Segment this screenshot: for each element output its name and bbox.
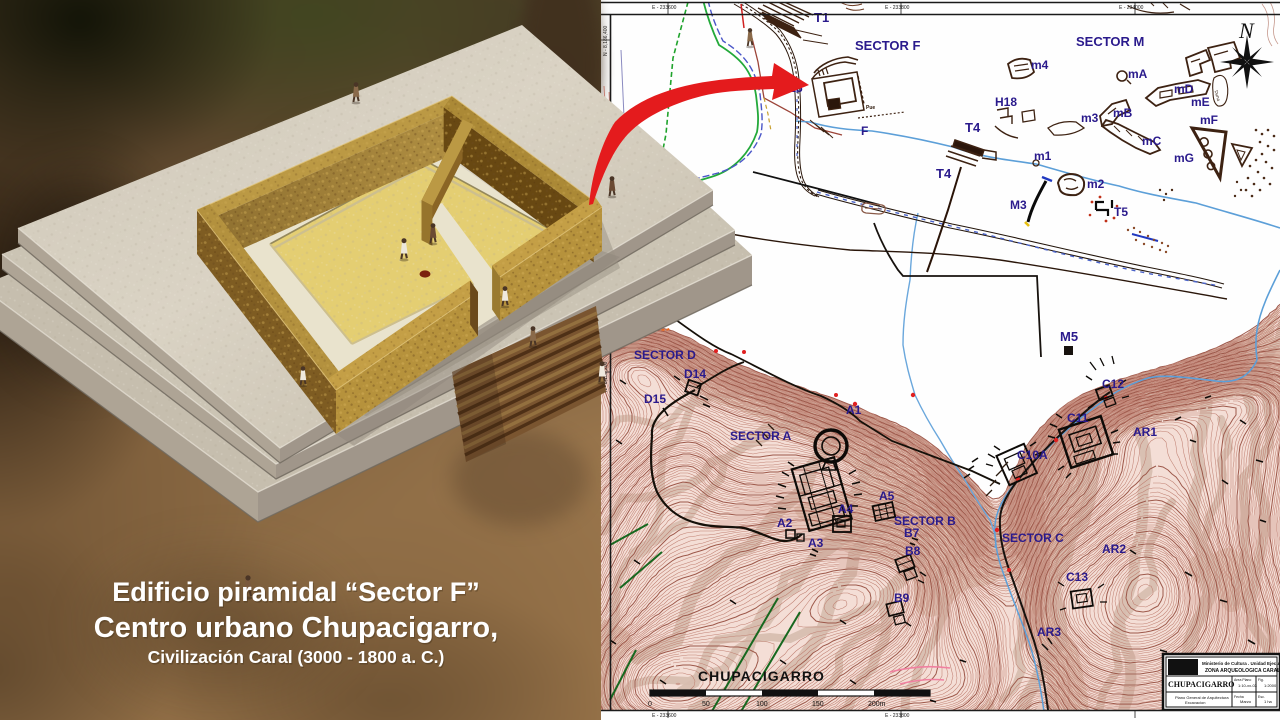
svg-text:AR3: AR3: [1037, 625, 1061, 639]
svg-text:E - 233600: E - 233600: [652, 713, 677, 719]
svg-text:Pue: Pue: [866, 105, 875, 111]
svg-text:H18: H18: [995, 95, 1017, 109]
svg-text:ZONA ARQUEOLOGICA CARAL: ZONA ARQUEOLOGICA CARAL: [1205, 668, 1280, 674]
svg-text:A4: A4: [838, 502, 854, 516]
svg-text:C10A: C10A: [1017, 448, 1048, 462]
svg-text:Ministerio de Cultura . Unidad: Ministerio de Cultura . Unidad Ejecutora…: [1202, 661, 1280, 666]
svg-text:B9: B9: [894, 591, 910, 605]
svg-text:A2: A2: [777, 516, 793, 530]
svg-text:m2: m2: [1087, 177, 1105, 191]
svg-text:Marzo: Marzo: [1240, 699, 1252, 704]
svg-text:A5: A5: [879, 489, 895, 503]
svg-text:N - 8,186,400: N - 8,186,400: [603, 25, 609, 56]
svg-text:A1: A1: [846, 403, 862, 417]
svg-text:A3: A3: [808, 536, 824, 550]
svg-text:SECTOR M: SECTOR M: [1076, 34, 1144, 49]
svg-text:mG: mG: [1174, 151, 1194, 165]
svg-text:1 ha: 1 ha: [1264, 699, 1273, 704]
svg-text:E - 233800: E - 233800: [885, 713, 910, 719]
svg-text:mE: mE: [1191, 95, 1210, 109]
svg-text:SECTOR F: SECTOR F: [855, 38, 921, 53]
svg-text:0: 0: [648, 701, 652, 708]
svg-text:B7: B7: [904, 526, 920, 540]
svg-text:C13: C13: [1066, 570, 1088, 584]
svg-text:C12: C12: [1102, 377, 1124, 391]
svg-text:Civilización Caral (3000 - 180: Civilización Caral (3000 - 1800 a. C.): [148, 647, 445, 667]
svg-text:M3: M3: [1010, 198, 1027, 212]
svg-text:E - 233600: E - 233600: [652, 5, 677, 11]
svg-text:Edificio piramidal “Sector F”: Edificio piramidal “Sector F”: [112, 577, 480, 607]
svg-text:AR2: AR2: [1102, 542, 1126, 556]
svg-text:SECTOR C: SECTOR C: [1002, 531, 1064, 545]
svg-text:M5: M5: [1060, 329, 1078, 344]
svg-text:Fig.: Fig.: [1258, 678, 1264, 682]
svg-text:T5: T5: [1114, 205, 1128, 219]
svg-text:50: 50: [702, 701, 710, 708]
svg-text:Centro urbano Chupacigarro,: Centro urbano Chupacigarro,: [94, 612, 498, 644]
svg-text:m1: m1: [1034, 149, 1052, 163]
svg-text:D15: D15: [644, 392, 666, 406]
svg-text:T1: T1: [814, 10, 829, 25]
svg-text:F: F: [861, 124, 868, 138]
svg-text:C11: C11: [1067, 411, 1089, 425]
svg-text:150: 150: [812, 701, 824, 708]
svg-text:1:2000: 1:2000: [1264, 683, 1277, 688]
svg-text:Area Plano: Area Plano: [1234, 678, 1251, 682]
svg-text:CHUPACIGARRO: CHUPACIGARRO: [1168, 680, 1235, 689]
svg-text:mB: mB: [1113, 106, 1133, 120]
svg-text:CHUPACIGARRO: CHUPACIGARRO: [698, 668, 825, 684]
svg-text:T4: T4: [965, 120, 981, 135]
svg-text:m3: m3: [1081, 111, 1099, 125]
svg-text:Excavacion: Excavacion: [1185, 700, 1205, 705]
svg-text:mC: mC: [1142, 134, 1162, 148]
svg-text:m4: m4: [1031, 58, 1049, 72]
svg-text:T4: T4: [936, 166, 952, 181]
svg-text:E - 233800: E - 233800: [885, 5, 910, 11]
svg-text:mA: mA: [1128, 67, 1148, 81]
svg-text:B8: B8: [905, 544, 921, 558]
svg-text:AR1: AR1: [1133, 425, 1157, 439]
svg-text:100: 100: [756, 701, 768, 708]
svg-text:mD: mD: [1174, 82, 1194, 96]
svg-text:SECTOR D: SECTOR D: [634, 348, 696, 362]
svg-text:200m: 200m: [868, 701, 886, 708]
svg-text:D14: D14: [684, 367, 706, 381]
svg-text:E - 234000: E - 234000: [1119, 5, 1144, 11]
svg-text:mF: mF: [1200, 113, 1218, 127]
svg-text:1:10-xx-03: 1:10-xx-03: [1238, 683, 1258, 688]
svg-text:SECTOR A: SECTOR A: [730, 429, 792, 443]
